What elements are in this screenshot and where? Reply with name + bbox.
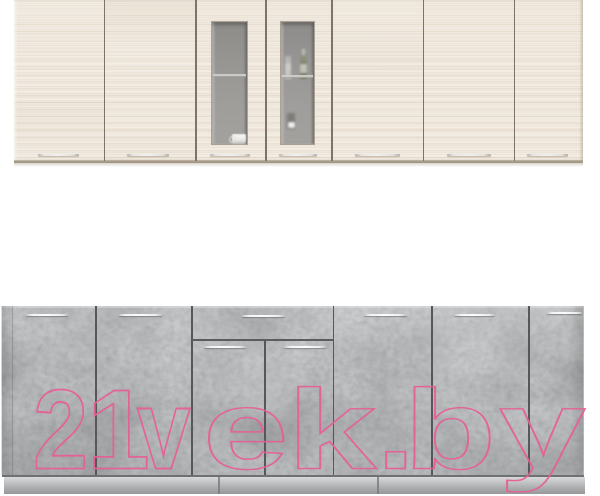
svg-text:k: k [287, 367, 377, 493]
svg-text:e: e [203, 366, 288, 493]
svg-text:2: 2 [33, 367, 88, 493]
svg-text:v: v [137, 367, 190, 493]
svg-text:y: y [499, 366, 586, 492]
svg-text:b: b [404, 367, 496, 493]
